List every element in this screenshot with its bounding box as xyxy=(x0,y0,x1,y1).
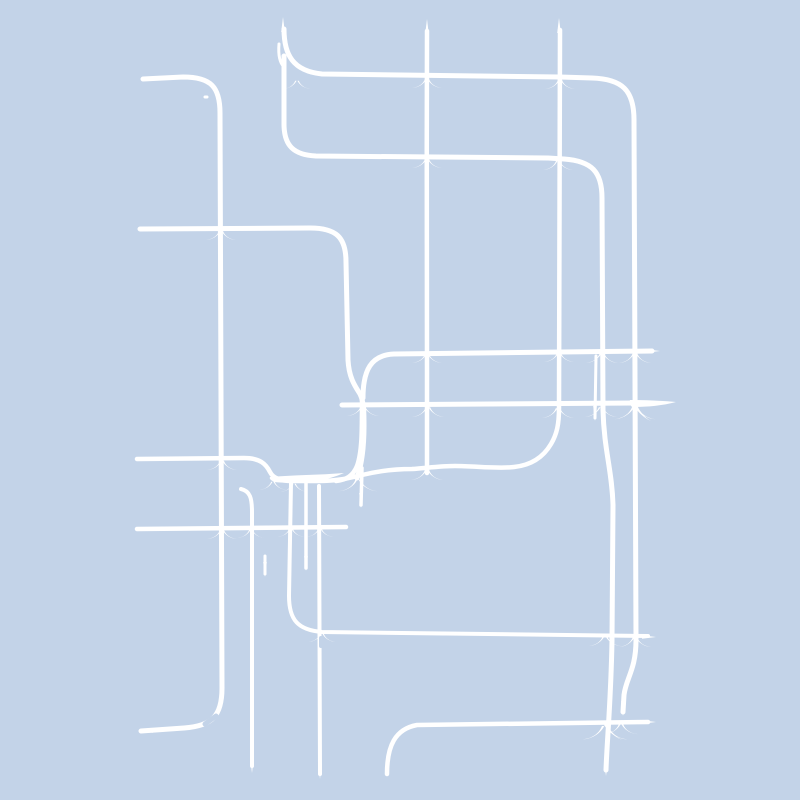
art-stroke-h2-y403 xyxy=(342,403,638,405)
art-stroke-h527 xyxy=(137,527,346,529)
artwork-canvas xyxy=(0,0,800,800)
abstract-line-art xyxy=(0,0,800,800)
background-plate xyxy=(0,0,800,800)
